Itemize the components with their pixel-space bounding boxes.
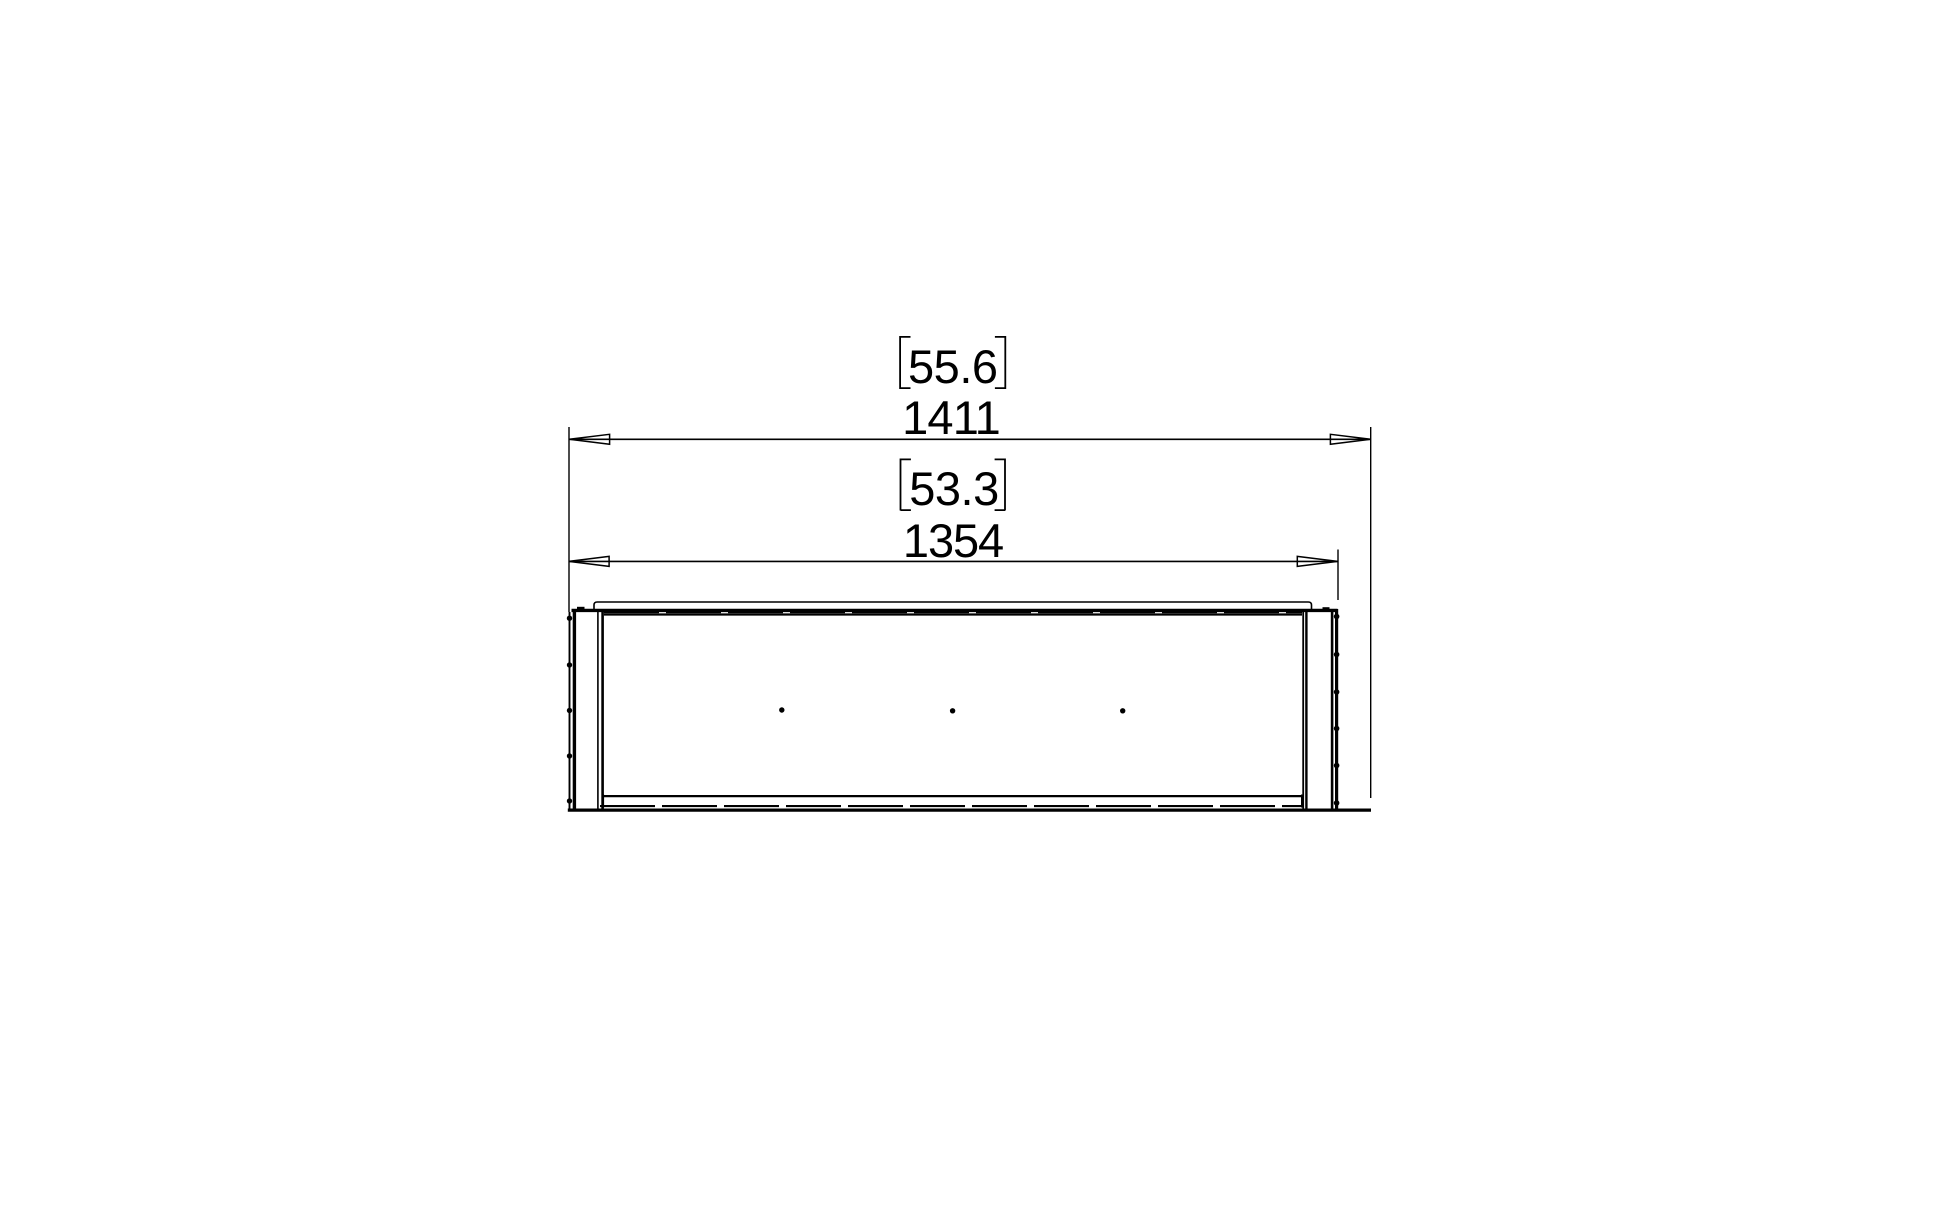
svg-text:55.6: 55.6: [908, 340, 997, 393]
svg-text:1354: 1354: [903, 514, 1003, 567]
svg-text:53.3: 53.3: [909, 462, 998, 515]
svg-text:1411: 1411: [902, 391, 1000, 444]
